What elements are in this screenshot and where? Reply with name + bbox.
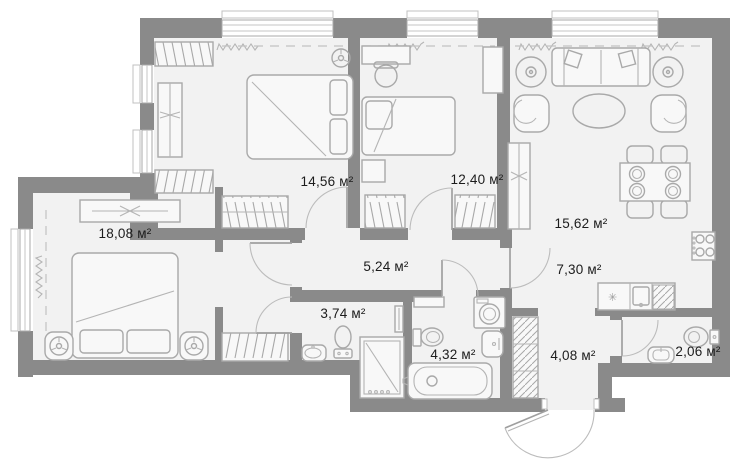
armchair [651,95,686,132]
room-label-bedroom-2: 14,56 м² [301,174,354,189]
room-label-wc-shower: 3,74 м² [320,306,366,321]
floor-plan: ✳ [0,0,750,475]
room-label-kitchen: 7,30 м² [556,262,602,277]
shelf [414,297,444,307]
sink [302,345,326,361]
nightstand-lamp [180,332,208,360]
kitchen-counter: ✳ [598,283,675,310]
wardrobe [222,196,288,228]
room-label-bathroom: 4,32 м² [430,347,476,362]
sofa [552,48,650,86]
shelf [483,47,503,93]
double-bed [72,253,178,358]
counter-symbol: ✳ [608,292,617,304]
bathtub [403,363,492,399]
nightstand-lamp [45,332,73,360]
window-left-3 [20,229,30,331]
floor-plan-canvas: ✳ [0,0,750,475]
wardrobe [155,42,213,66]
mirror-wardrobe [158,83,182,157]
single-bed [362,97,455,155]
wardrobe [455,195,495,228]
drying-rack [653,285,674,309]
room-label-bedroom-1: 18,08 м² [99,226,152,241]
window-top-3 [552,20,658,36]
wardrobe [155,170,213,193]
window-left-2 [142,130,152,173]
tv-unit [508,143,530,229]
room-label-bedroom-3: 12,40 м² [451,172,504,187]
stove [692,232,715,260]
armchair [514,95,549,132]
shower-cabin [360,337,404,398]
sink [648,347,674,363]
window-top-1 [222,20,333,36]
wardrobe [365,195,405,228]
washing-machine [474,297,505,328]
room-label-living-room: 15,62 м² [555,216,608,231]
room-label-entry-hall: 4,08 м² [550,348,596,363]
dresser [80,200,180,222]
sink [482,331,503,357]
room-label-wc: 2,06 м² [675,344,721,359]
double-bed [247,75,353,159]
towel-radiator [395,306,403,332]
room-label-hallway: 5,24 м² [363,259,409,274]
nightstand [362,160,385,182]
wardrobe [222,333,288,361]
wardrobe [513,317,538,398]
window-top-2 [407,20,478,36]
window-left-1 [142,65,152,103]
